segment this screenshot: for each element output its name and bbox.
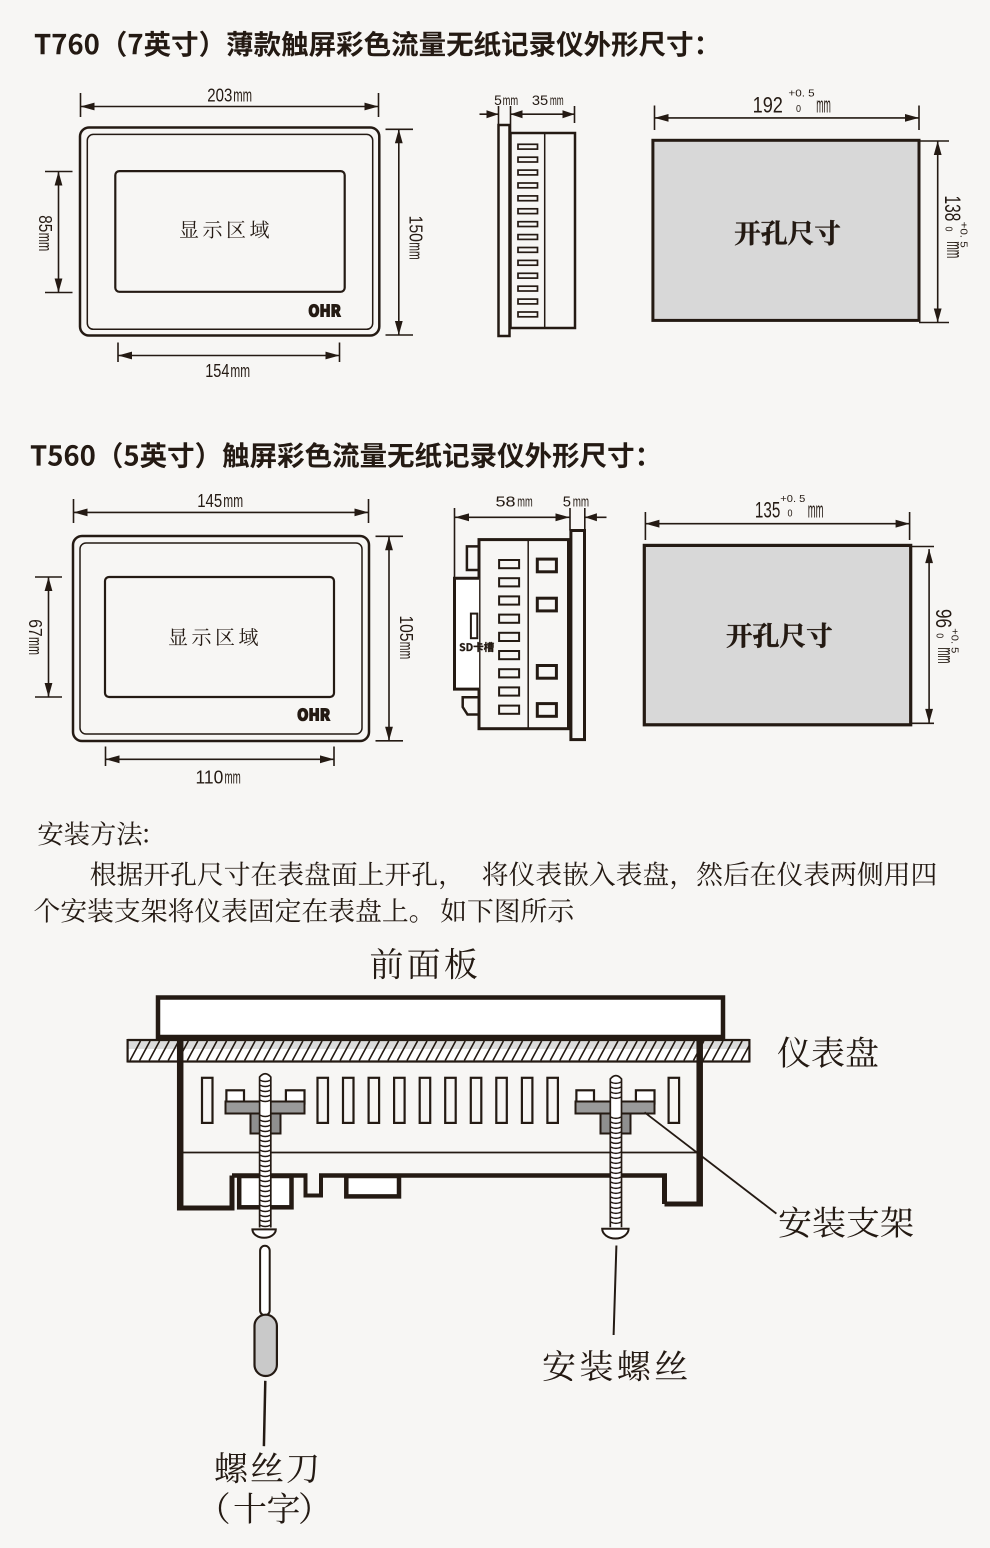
svg-text:145: 145 — [197, 490, 222, 511]
svg-text:150: 150 — [406, 216, 427, 243]
svg-text:mm: mm — [225, 767, 241, 788]
svg-text:0: 0 — [796, 103, 801, 115]
svg-text:+0. 5: +0. 5 — [788, 88, 814, 100]
svg-text:154: 154 — [205, 360, 229, 381]
svg-text:mm: mm — [808, 497, 824, 522]
svg-text:96: 96 — [931, 609, 956, 628]
svg-text:mm: mm — [942, 241, 967, 258]
svg-text:mm: mm — [35, 233, 56, 252]
svg-text:67: 67 — [25, 619, 46, 636]
svg-text:mm: mm — [517, 493, 532, 510]
svg-text:138: 138 — [940, 196, 965, 222]
svg-text:0: 0 — [942, 227, 954, 232]
svg-text:192: 192 — [753, 92, 783, 117]
svg-text:mm: mm — [573, 493, 589, 510]
svg-text:mm: mm — [550, 93, 564, 108]
svg-text:mm: mm — [396, 642, 417, 660]
svg-text:5: 5 — [563, 493, 571, 510]
svg-text:85: 85 — [35, 215, 56, 232]
svg-text:mm: mm — [230, 360, 250, 381]
svg-text:110: 110 — [196, 767, 224, 788]
svg-text:35: 35 — [532, 93, 548, 108]
svg-text:58: 58 — [496, 493, 516, 510]
svg-text:0: 0 — [933, 633, 945, 638]
svg-text:105: 105 — [396, 616, 417, 642]
svg-text:135: 135 — [755, 497, 780, 522]
svg-text:mm: mm — [25, 637, 46, 655]
svg-text:203: 203 — [207, 84, 232, 105]
svg-text:+0. 5: +0. 5 — [780, 493, 805, 505]
svg-text:mm: mm — [503, 93, 518, 108]
svg-text:mm: mm — [233, 84, 252, 105]
svg-text:mm: mm — [406, 242, 427, 259]
svg-text:mm: mm — [933, 648, 958, 664]
svg-text:0: 0 — [788, 507, 793, 519]
svg-text:mm: mm — [223, 490, 243, 511]
svg-text:mm: mm — [816, 92, 831, 117]
svg-text:5: 5 — [494, 93, 502, 108]
